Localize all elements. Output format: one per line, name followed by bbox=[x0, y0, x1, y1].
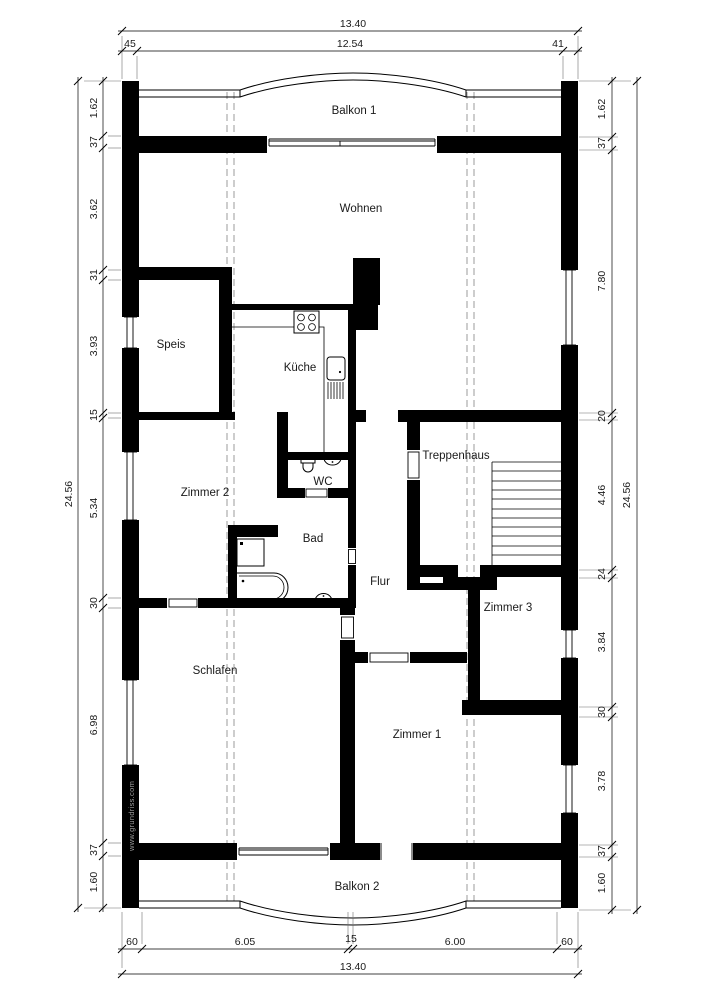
dim-bottom-seg3: 6.00 bbox=[445, 936, 466, 948]
dim-left-seg3: 31 bbox=[88, 269, 100, 281]
dim-right-seg2: 7.80 bbox=[596, 271, 608, 292]
watermark: www.grundriss.com bbox=[127, 781, 136, 852]
dim-bottom-seg0: 60 bbox=[126, 936, 138, 948]
balcony1-railing bbox=[139, 73, 561, 97]
dim-left-seg5: 15 bbox=[88, 409, 100, 421]
wc-door bbox=[306, 489, 327, 497]
room-label-zimmer1: Zimmer 1 bbox=[393, 729, 442, 741]
doors bbox=[169, 452, 419, 662]
bathtub-icon bbox=[236, 573, 288, 602]
window-zimmer3 bbox=[561, 630, 578, 658]
dim-right-overall: 24.56 bbox=[621, 482, 633, 508]
dim-top-overall: 13.40 bbox=[340, 18, 366, 30]
schlafen-flur-door bbox=[342, 617, 354, 638]
dim-right-seg10: 1.60 bbox=[596, 873, 608, 894]
room-label-kueche: Küche bbox=[284, 362, 317, 374]
floor-plan-page: Balkon 1 Wohnen Speis Küche Zimmer 2 WC … bbox=[0, 0, 707, 1000]
dim-right-seg4: 4.46 bbox=[596, 485, 608, 506]
dim-top-seg2: 41 bbox=[552, 38, 564, 50]
room-label-balkon2: Balkon 2 bbox=[335, 881, 380, 893]
dim-left-seg2: 3.62 bbox=[88, 199, 100, 220]
dim-bottom-seg1: 6.05 bbox=[235, 936, 256, 948]
dim-left-overall: 24.56 bbox=[63, 481, 75, 507]
dim-right-seg0: 1.62 bbox=[596, 99, 608, 120]
room-label-treppenhaus: Treppenhaus bbox=[422, 450, 490, 462]
dim-left-seg10: 1.60 bbox=[88, 872, 100, 893]
zimmer1-door bbox=[370, 653, 408, 662]
bad-door bbox=[349, 550, 356, 564]
dim-left-seg9: 37 bbox=[88, 844, 100, 856]
zimmer2-schlafen-door bbox=[169, 599, 197, 607]
apartment-entry-door bbox=[408, 452, 419, 478]
room-label-bad: Bad bbox=[303, 533, 323, 545]
dim-right-seg6: 3.84 bbox=[596, 632, 608, 653]
room-label-schlafen: Schlafen bbox=[193, 665, 238, 677]
room-label-balkon1: Balkon 1 bbox=[332, 105, 377, 117]
dimension-bottom: 60 6.05 15 6.00 60 13.40 bbox=[118, 933, 582, 978]
dim-bottom-overall: 13.40 bbox=[340, 961, 366, 973]
dimension-right: 1.62 37 7.80 20 4.46 24 3.84 30 3.78 37 … bbox=[596, 77, 641, 914]
room-label-wc: WC bbox=[313, 476, 332, 488]
shower-icon bbox=[237, 539, 264, 566]
room-label-flur: Flur bbox=[370, 576, 390, 588]
dim-right-seg5: 24 bbox=[596, 568, 608, 580]
dimension-extension-lines bbox=[84, 36, 631, 968]
dim-right-seg1: 37 bbox=[596, 137, 608, 149]
window-schlafen bbox=[122, 680, 139, 765]
window-zimmer1 bbox=[561, 765, 578, 813]
dim-top-seg1: 12.54 bbox=[337, 38, 363, 50]
dim-bottom-seg4: 60 bbox=[561, 936, 573, 948]
dim-left-seg6: 5.34 bbox=[88, 498, 100, 519]
window-balkon1 bbox=[267, 136, 437, 153]
dim-left-seg7: 30 bbox=[88, 597, 100, 609]
room-label-speis: Speis bbox=[157, 339, 186, 351]
dim-left-seg0: 1.62 bbox=[88, 98, 100, 119]
room-label-wohnen: Wohnen bbox=[340, 203, 383, 215]
dishwasher-grate-icon bbox=[328, 382, 343, 399]
dim-top-seg0: 45 bbox=[124, 38, 136, 50]
dim-left-seg4: 3.93 bbox=[88, 336, 100, 357]
dim-right-seg7: 30 bbox=[596, 706, 608, 718]
balcony2-railing bbox=[139, 901, 561, 925]
kitchen-sink-icon bbox=[327, 357, 345, 380]
dim-left-seg8: 6.98 bbox=[88, 715, 100, 736]
dim-left-seg1: 37 bbox=[88, 136, 100, 148]
dim-bottom-seg2: 15 bbox=[345, 933, 357, 945]
balcony2-door-opening bbox=[380, 843, 413, 860]
room-label-zimmer3: Zimmer 3 bbox=[484, 602, 533, 614]
window-zimmer2 bbox=[122, 452, 139, 520]
dimension-top: 13.40 45 12.54 41 bbox=[118, 18, 582, 55]
dimension-left: 1.62 37 3.62 31 3.93 15 5.34 30 6.98 37 … bbox=[63, 77, 107, 912]
window-wohnen bbox=[561, 270, 578, 345]
floor-plan: Balkon 1 Wohnen Speis Küche Zimmer 2 WC … bbox=[0, 0, 707, 1000]
room-label-zimmer2: Zimmer 2 bbox=[181, 487, 230, 499]
dim-right-seg3: 20 bbox=[596, 410, 608, 422]
stairs bbox=[492, 462, 561, 565]
window-speis bbox=[122, 317, 139, 348]
stove-icon bbox=[294, 311, 319, 333]
window-balkon2 bbox=[237, 843, 330, 860]
dim-right-seg9: 37 bbox=[596, 845, 608, 857]
dim-right-seg8: 3.78 bbox=[596, 771, 608, 792]
